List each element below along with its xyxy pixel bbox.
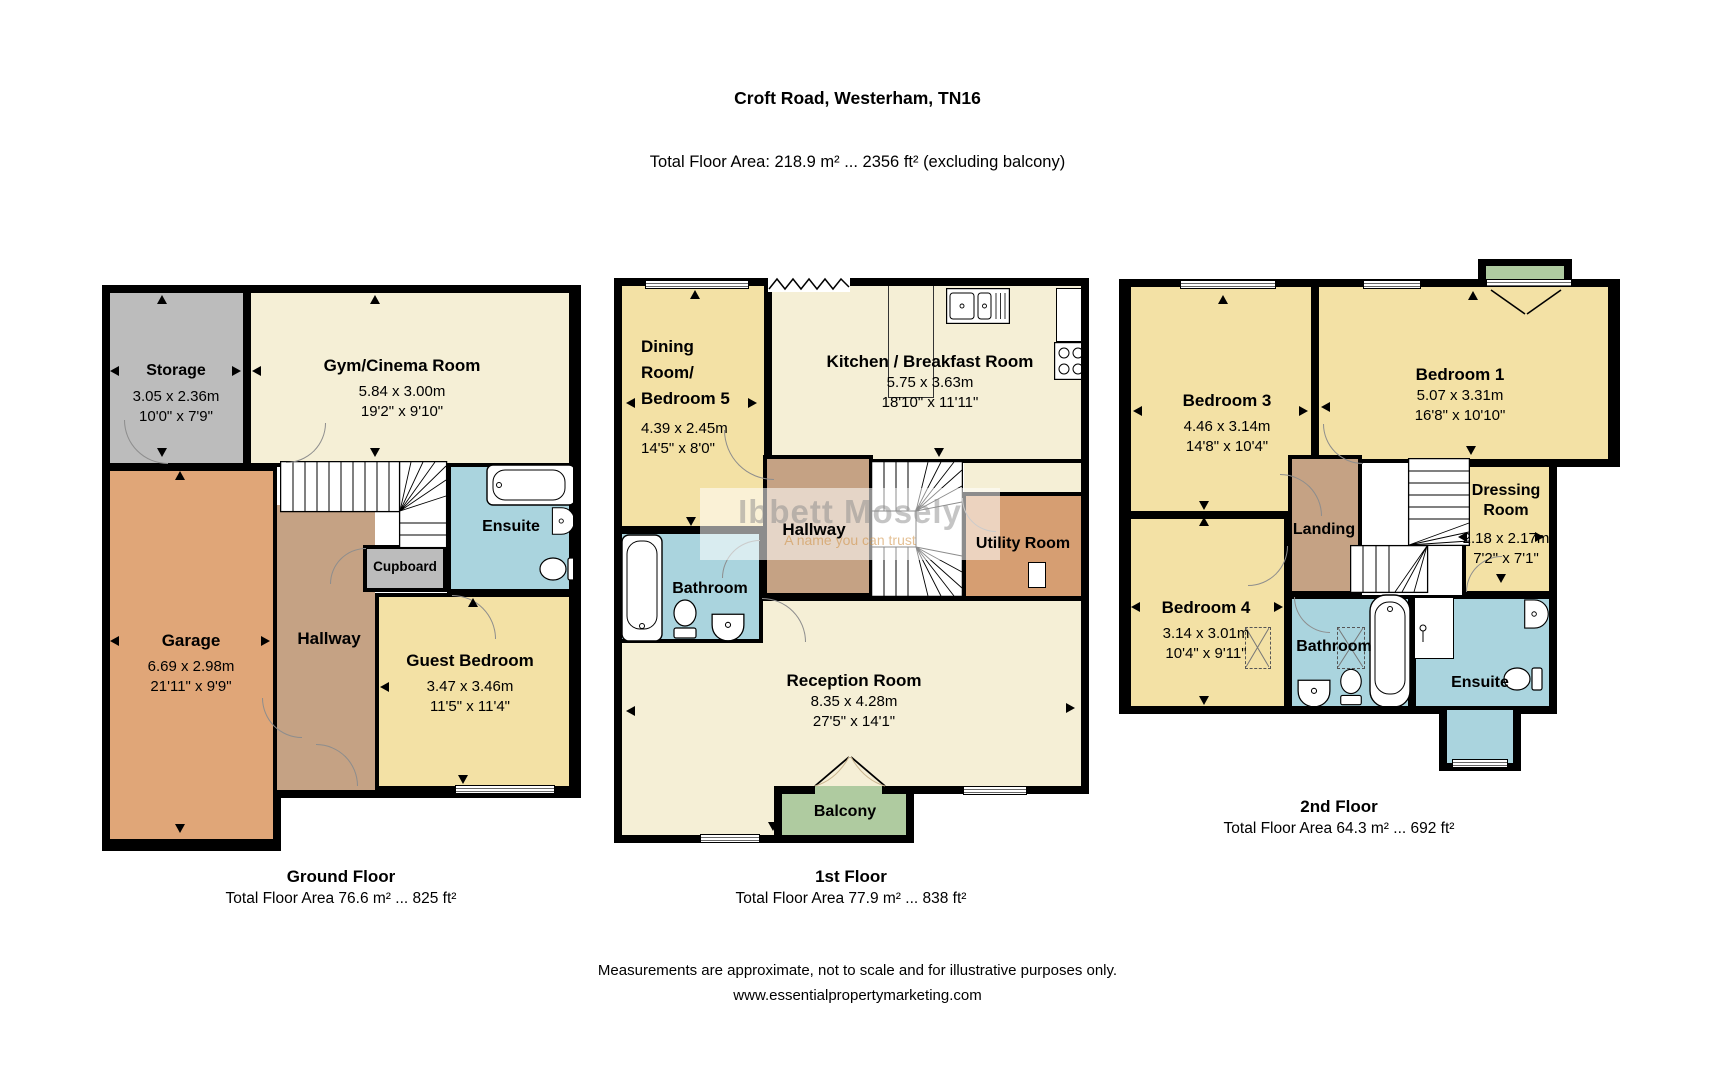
sink-icon — [710, 612, 746, 642]
room-label: Gym/Cinema Room 5.84 x 3.00m 19'2" x 9'1… — [302, 355, 502, 422]
wall — [1612, 279, 1620, 467]
room-label: Hallway — [754, 519, 874, 541]
window — [1486, 279, 1572, 287]
measure-arrow — [370, 448, 380, 457]
wall — [102, 285, 581, 293]
room-label: Bathroom — [1274, 636, 1394, 658]
floor-caption: 2nd Floor Total Floor Area 64.3 m² ... 6… — [1139, 796, 1539, 840]
measure-arrow — [1066, 703, 1075, 713]
room-label: Ensuite — [1420, 672, 1540, 694]
room-label: Reception Room 8.35 x 4.28m 27'5" x 14'1… — [734, 670, 974, 732]
room-label: Dressing Room 2.18 x 2.17m 7'2" x 7'1" — [1446, 481, 1566, 569]
toilet-icon — [670, 598, 700, 640]
measure-arrow — [157, 448, 167, 457]
footer-disclaimer: Measurements are approximate, not to sca… — [0, 958, 1715, 983]
measure-arrow — [690, 290, 700, 299]
measure-arrow — [175, 824, 185, 833]
wall — [273, 795, 281, 851]
room-label: Bedroom 3 4.46 x 3.14m 14'8" x 10'4" — [1127, 390, 1327, 457]
measure-arrow — [686, 517, 696, 526]
room-label: Bathroom — [650, 578, 770, 600]
measure-arrow — [934, 448, 944, 457]
sink-icon — [1522, 598, 1550, 630]
wall — [614, 278, 622, 843]
footer-website: www.essentialpropertymarketing.com — [0, 983, 1715, 1008]
floor-caption: 1st Floor Total Floor Area 77.9 m² ... 8… — [651, 866, 1051, 910]
wall — [1119, 706, 1447, 714]
measure-arrow — [1199, 501, 1209, 510]
measure-arrow — [1199, 517, 1209, 526]
wall — [774, 835, 914, 843]
floorplan-page: Croft Road, Westerham, TN16 Total Floor … — [0, 0, 1715, 1080]
wall — [1439, 706, 1447, 771]
toilet-icon — [1337, 666, 1365, 708]
room-label: Dining Room/ Bedroom 5 4.39 x 2.45m 14'5… — [641, 334, 771, 459]
window — [1452, 759, 1508, 768]
wall — [102, 843, 281, 851]
wall — [1513, 706, 1521, 771]
room-label: Balcony — [785, 801, 905, 823]
room-label: Landing — [1264, 519, 1384, 541]
french-doors-icon — [812, 754, 888, 788]
room-label: Guest Bedroom 3.47 x 3.46m 11'5" x 11'4" — [370, 650, 570, 717]
wall — [781, 786, 815, 794]
stairs-icon — [280, 461, 448, 549]
window — [700, 834, 760, 843]
measure-arrow — [626, 706, 635, 716]
window — [963, 786, 1027, 795]
room-reception-extension — [618, 786, 785, 837]
wall — [1478, 259, 1572, 266]
measure-arrow — [468, 598, 478, 607]
room-label: Utility Room — [953, 533, 1093, 555]
room-label: Hallway — [259, 628, 399, 650]
floor-caption: Ground Floor Total Floor Area 76.6 m² ..… — [141, 866, 541, 910]
wall — [573, 285, 581, 798]
kitchen-sink-icon — [946, 288, 1010, 324]
measure-arrow — [1466, 446, 1476, 455]
room-label: Bedroom 1 5.07 x 3.31m 16'8" x 10'10" — [1360, 364, 1560, 426]
window — [1180, 280, 1276, 289]
footer-note: Measurements are approximate, not to sca… — [0, 958, 1715, 1008]
measure-arrow — [175, 471, 185, 480]
room-label: Cupboard — [355, 559, 455, 575]
page-title: Croft Road, Westerham, TN16 — [0, 88, 1715, 109]
measure-arrow — [1468, 291, 1478, 300]
measure-arrow — [1199, 696, 1209, 705]
room-label: Storage 3.05 x 2.36m 10'0" x 7'9" — [91, 360, 261, 427]
room-label: Ensuite — [451, 516, 571, 538]
sink-icon — [1296, 678, 1332, 708]
window — [645, 280, 749, 289]
zigzag-divider — [768, 276, 850, 292]
room-label: Kitchen / Breakfast Room 5.75 x 3.63m 18… — [800, 351, 1060, 413]
wall — [1549, 459, 1620, 467]
measure-arrow — [157, 295, 167, 304]
window — [1363, 280, 1421, 289]
bathtub-icon — [486, 464, 576, 506]
measure-arrow — [458, 775, 468, 784]
shower-icon — [1414, 597, 1454, 659]
measure-arrow — [370, 295, 380, 304]
measure-arrow — [1218, 295, 1228, 304]
page-subtitle: Total Floor Area: 218.9 m² ... 2356 ft² … — [0, 153, 1715, 172]
utility-sink-icon — [1028, 562, 1046, 588]
french-doors-icon — [1488, 288, 1564, 318]
measure-arrow — [626, 398, 635, 408]
measure-arrow — [1496, 574, 1506, 583]
window — [455, 785, 555, 794]
